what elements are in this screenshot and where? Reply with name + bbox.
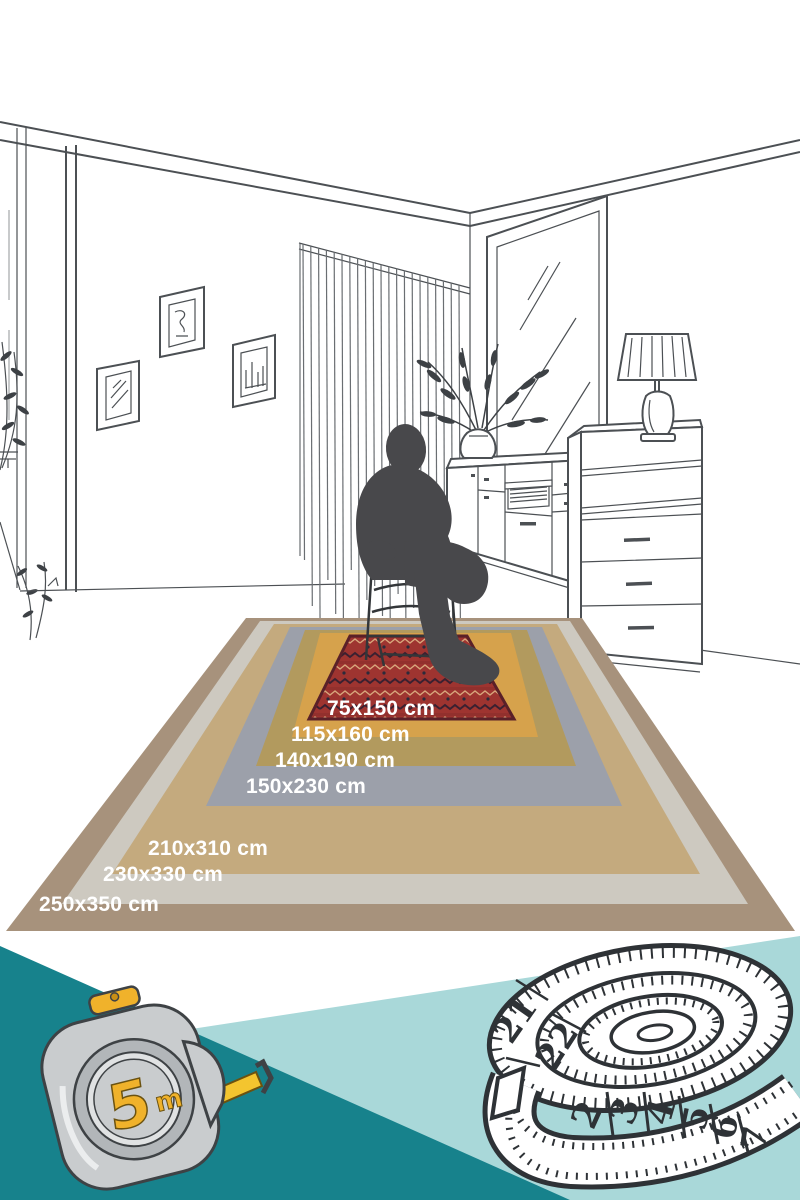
floor-mark bbox=[48, 578, 58, 586]
picture-frame-2 bbox=[160, 287, 204, 357]
rug-size-label-230x330: 230x330 cm bbox=[103, 864, 223, 885]
curtain-fold-line bbox=[326, 250, 328, 580]
floor-line-left bbox=[20, 584, 345, 591]
tape-coil-illustration: 21 22 2 3 4 5 6 7 bbox=[477, 925, 800, 1176]
curtain-fold-line bbox=[342, 254, 344, 644]
rug-size-label-115x160: 115x160 cm bbox=[291, 724, 410, 745]
rug-size-label-210x310: 210x310 cm bbox=[148, 838, 268, 859]
floor-line-right bbox=[700, 650, 800, 664]
left-doorway bbox=[0, 127, 76, 592]
floor-plant-sketch bbox=[16, 562, 53, 640]
ceiling-trim bbox=[0, 122, 800, 226]
curtain-fold-line bbox=[358, 258, 360, 624]
rug-size-label-250x350: 250x350 cm bbox=[39, 894, 159, 915]
rug-size-label-150x230: 150x230 cm bbox=[246, 776, 366, 797]
rug-size-guide-infographic: 5 m 21 2 bbox=[0, 0, 800, 1200]
rug-size-label-140x190: 140x190 cm bbox=[275, 750, 395, 771]
picture-frame-3 bbox=[233, 335, 275, 407]
rug-size-label-75x150: 75x150 cm bbox=[327, 698, 435, 719]
box-on-shelf bbox=[505, 480, 552, 509]
picture-frame-1 bbox=[97, 361, 139, 430]
curtain-fold-line bbox=[311, 246, 313, 606]
curtain-fold-line bbox=[350, 256, 352, 570]
curtain-fold-line bbox=[319, 248, 321, 636]
bottom-banner: 5 m 21 2 bbox=[0, 925, 800, 1200]
curtain-fold-line bbox=[334, 252, 336, 614]
curtain-fold-line bbox=[303, 244, 305, 560]
